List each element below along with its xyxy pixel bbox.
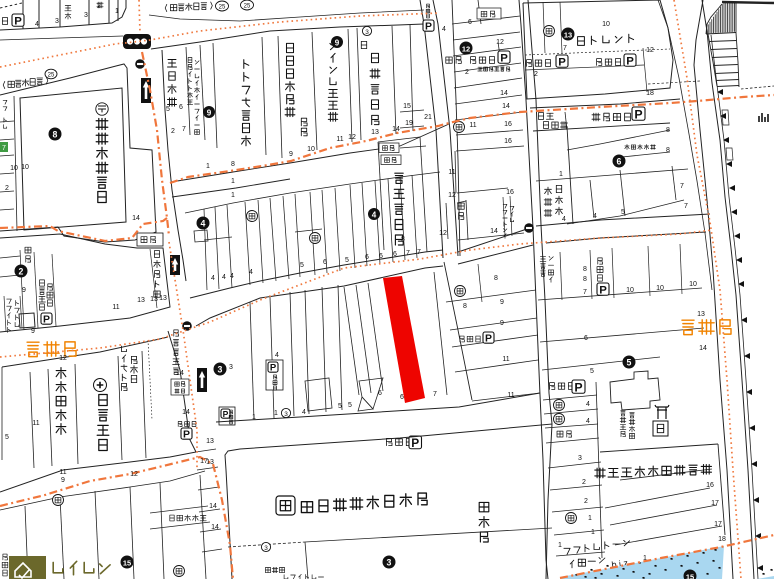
svg-text:9: 9: [22, 287, 26, 294]
svg-text:1: 1: [588, 515, 592, 522]
svg-text:8: 8: [583, 266, 587, 273]
svg-text:9: 9: [500, 299, 504, 306]
svg-text:2: 2: [19, 267, 24, 277]
svg-text:4: 4: [275, 352, 279, 359]
svg-text:P: P: [411, 436, 419, 450]
svg-text:8: 8: [231, 161, 235, 168]
svg-text:18: 18: [718, 536, 726, 543]
svg-text:7: 7: [563, 45, 567, 52]
svg-text:10: 10: [602, 21, 610, 28]
svg-text:3: 3: [218, 365, 223, 375]
svg-text:1: 1: [559, 171, 563, 178]
svg-text:6: 6: [468, 19, 472, 26]
svg-text:7: 7: [182, 126, 186, 133]
svg-text:11: 11: [32, 420, 39, 427]
svg-text:3: 3: [264, 545, 268, 552]
svg-text:4: 4: [593, 213, 597, 220]
svg-text:P: P: [14, 15, 22, 27]
svg-text:P: P: [626, 55, 634, 67]
svg-text:14: 14: [209, 503, 217, 510]
svg-text:9: 9: [61, 477, 65, 484]
svg-text:17: 17: [714, 521, 722, 528]
svg-text:13: 13: [206, 438, 214, 445]
svg-text:12: 12: [448, 192, 456, 199]
svg-text:P: P: [634, 107, 642, 121]
svg-text:8: 8: [463, 303, 467, 310]
svg-text:7: 7: [406, 250, 410, 257]
svg-text:P: P: [500, 52, 508, 64]
svg-text:11: 11: [507, 392, 514, 399]
svg-text:21: 21: [424, 114, 432, 121]
svg-text:25: 25: [48, 73, 55, 79]
svg-text:16: 16: [506, 189, 514, 196]
svg-text:5: 5: [5, 434, 9, 441]
svg-text:12: 12: [348, 134, 356, 141]
svg-text:3: 3: [284, 411, 288, 418]
svg-text:7: 7: [583, 289, 587, 296]
svg-text:12: 12: [462, 45, 470, 54]
svg-text:P: P: [183, 430, 190, 441]
svg-text:4: 4: [230, 273, 234, 280]
svg-text:6: 6: [379, 253, 383, 260]
svg-text:12: 12: [496, 39, 504, 46]
svg-text:P: P: [43, 315, 50, 326]
svg-text:25: 25: [244, 4, 251, 10]
svg-text:3: 3: [84, 12, 88, 19]
svg-text:7: 7: [417, 249, 421, 256]
svg-text:7: 7: [684, 203, 688, 210]
svg-text:1: 1: [591, 529, 595, 536]
svg-text:1: 1: [115, 8, 119, 15]
svg-text:14: 14: [502, 103, 510, 110]
svg-text:4: 4: [442, 26, 446, 33]
svg-text:5: 5: [590, 368, 594, 375]
svg-text:7: 7: [433, 391, 437, 398]
svg-text:9: 9: [335, 38, 340, 47]
svg-text:13: 13: [697, 311, 705, 318]
svg-text:11: 11: [448, 169, 455, 176]
svg-text:3: 3: [365, 29, 369, 36]
svg-text:12: 12: [646, 47, 654, 54]
svg-text:14: 14: [211, 524, 219, 531]
svg-text:14: 14: [699, 345, 707, 352]
svg-text:6: 6: [179, 104, 183, 111]
svg-text:9: 9: [207, 108, 212, 117]
svg-text:12: 12: [59, 355, 67, 362]
svg-text:4: 4: [222, 274, 226, 281]
svg-text:14: 14: [182, 409, 190, 416]
svg-text:10: 10: [307, 146, 315, 153]
svg-text:14: 14: [176, 370, 184, 377]
svg-text:14: 14: [392, 126, 400, 133]
svg-text:4: 4: [372, 210, 377, 219]
svg-text:2: 2: [97, 3, 101, 10]
svg-text:5: 5: [621, 209, 625, 216]
svg-text:5: 5: [166, 106, 170, 113]
svg-text:3: 3: [229, 364, 233, 371]
svg-text:5: 5: [348, 402, 352, 409]
svg-text:5: 5: [338, 403, 342, 410]
svg-text:1: 1: [206, 163, 210, 170]
svg-text:12: 12: [130, 471, 138, 478]
svg-text:6: 6: [378, 390, 382, 397]
svg-text:11: 11: [112, 304, 119, 311]
svg-text:14: 14: [132, 215, 140, 222]
svg-text:16: 16: [504, 138, 512, 145]
svg-text:8: 8: [583, 276, 587, 283]
svg-text:4: 4: [302, 409, 306, 416]
svg-text:13: 13: [137, 297, 145, 304]
svg-text:15: 15: [123, 559, 131, 568]
svg-text:13: 13: [564, 31, 572, 40]
svg-text:6: 6: [617, 157, 622, 167]
svg-text:6: 6: [393, 251, 397, 258]
svg-text:3: 3: [55, 18, 59, 25]
svg-text:1: 1: [252, 414, 256, 421]
svg-text:2: 2: [171, 128, 175, 135]
svg-text:4: 4: [35, 21, 39, 28]
svg-text:17: 17: [711, 500, 719, 507]
svg-text:10: 10: [656, 285, 664, 292]
svg-text:P: P: [223, 409, 229, 419]
svg-text:2: 2: [584, 498, 588, 505]
svg-text:7: 7: [680, 183, 684, 190]
svg-text:18: 18: [646, 90, 654, 97]
svg-text:P: P: [574, 380, 582, 394]
svg-text:9: 9: [31, 328, 35, 335]
svg-text:8: 8: [401, 236, 405, 243]
svg-text:P: P: [599, 284, 607, 296]
svg-text:1: 1: [231, 178, 235, 185]
svg-text:P: P: [270, 363, 277, 374]
svg-text:9: 9: [289, 151, 293, 158]
svg-text:P: P: [558, 56, 566, 68]
svg-text:13: 13: [150, 296, 158, 303]
svg-text:12: 12: [439, 230, 447, 237]
svg-text:11: 11: [59, 469, 66, 476]
svg-text:25: 25: [219, 5, 226, 11]
svg-text:13: 13: [371, 129, 379, 136]
svg-text:11: 11: [502, 356, 509, 363]
svg-text:2: 2: [534, 71, 538, 78]
svg-text:10: 10: [10, 165, 18, 172]
svg-text:4: 4: [586, 401, 590, 408]
svg-text:8: 8: [494, 275, 498, 282]
svg-text:4: 4: [201, 219, 206, 229]
svg-text:7: 7: [2, 145, 6, 152]
svg-text:10: 10: [689, 281, 697, 288]
svg-text:2: 2: [5, 185, 9, 192]
svg-text:5: 5: [300, 262, 304, 269]
svg-text:13: 13: [206, 459, 214, 466]
svg-text:5: 5: [345, 257, 349, 264]
svg-text:16: 16: [706, 482, 714, 489]
svg-text:4: 4: [249, 269, 253, 276]
svg-text:11: 11: [336, 136, 343, 143]
svg-text:P: P: [425, 22, 432, 33]
svg-text:15: 15: [686, 573, 694, 579]
svg-text:19: 19: [405, 120, 413, 127]
svg-text:6: 6: [400, 394, 404, 401]
svg-text:14: 14: [490, 228, 498, 235]
svg-text:1: 1: [274, 410, 278, 417]
svg-text:8: 8: [666, 147, 670, 154]
svg-text:10: 10: [626, 287, 634, 294]
svg-text:3: 3: [387, 558, 392, 568]
svg-text:4: 4: [562, 216, 566, 223]
svg-text:6: 6: [323, 259, 327, 266]
svg-text:4: 4: [586, 418, 590, 425]
svg-text:1: 1: [231, 192, 235, 199]
svg-text:1: 1: [643, 555, 647, 562]
svg-text:1: 1: [564, 122, 568, 129]
svg-text:16: 16: [504, 121, 512, 128]
svg-text:9: 9: [500, 320, 504, 327]
svg-text:14: 14: [500, 90, 508, 97]
svg-text:8: 8: [53, 130, 58, 140]
svg-text:10: 10: [21, 164, 29, 171]
svg-text:8: 8: [666, 127, 670, 134]
svg-text:11: 11: [469, 122, 476, 129]
svg-text:13: 13: [159, 295, 167, 302]
svg-text:P: P: [485, 334, 492, 345]
svg-text:5: 5: [627, 358, 632, 368]
svg-text:4: 4: [211, 275, 215, 282]
svg-text:2: 2: [582, 479, 586, 486]
svg-text:6: 6: [365, 254, 369, 261]
svg-text:15: 15: [403, 103, 411, 110]
svg-text:2: 2: [465, 69, 469, 76]
svg-text:3: 3: [578, 455, 582, 462]
svg-text:1: 1: [558, 542, 562, 549]
svg-text:6: 6: [584, 335, 588, 342]
